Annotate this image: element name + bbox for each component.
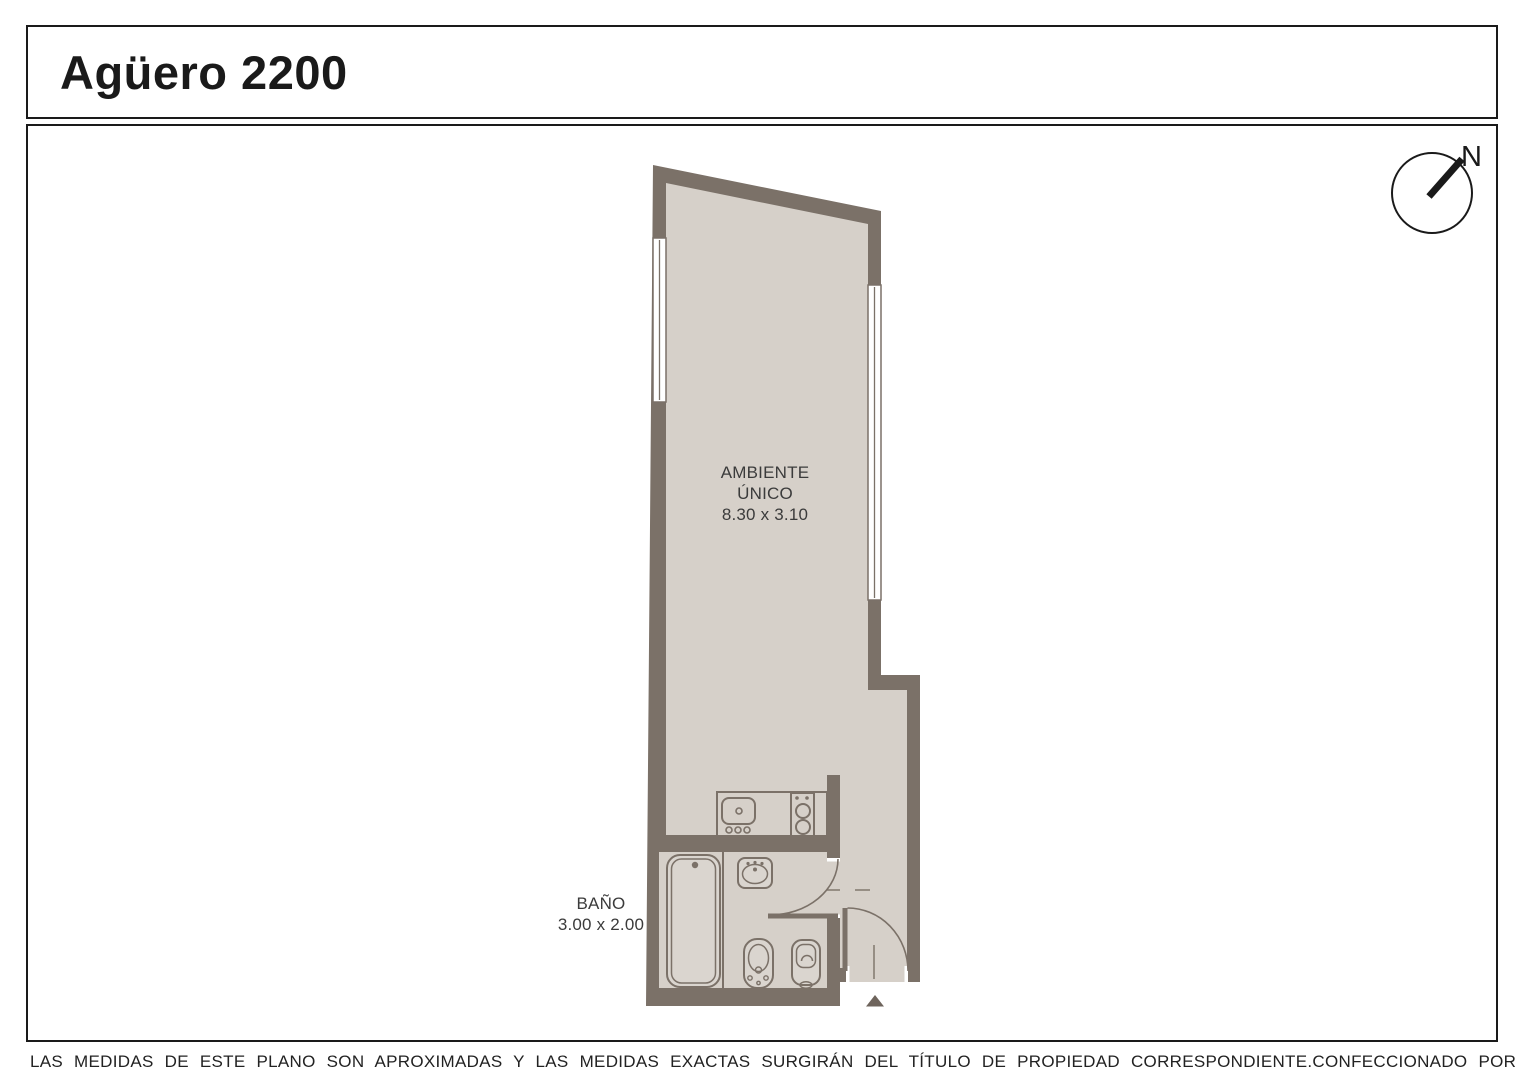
entrance-doorway-opening xyxy=(849,966,905,982)
bathtub xyxy=(667,852,723,988)
bathroom-name: BAÑO xyxy=(546,893,656,914)
main-room-name-line2: ÚNICO xyxy=(700,483,830,504)
bathroom-dimensions: 3.00 x 2.00 xyxy=(546,914,656,935)
entrance-arrow xyxy=(866,995,884,1007)
disclaimer-text: LAS MEDIDAS DE ESTE PLANO SON APROXIMADA… xyxy=(30,1052,1312,1072)
window-left xyxy=(653,238,666,402)
floor-plan-svg xyxy=(0,0,1528,1080)
north-compass xyxy=(1392,153,1472,233)
main-room-name-line1: AMBIENTE xyxy=(700,462,830,483)
footer: LAS MEDIDAS DE ESTE PLANO SON APROXIMADA… xyxy=(30,1052,1502,1072)
washbasin-faucet xyxy=(753,868,757,872)
window-right xyxy=(868,285,881,600)
bidet xyxy=(744,939,773,988)
main-room-dimensions: 8.30 x 3.10 xyxy=(700,504,830,525)
north-label: N xyxy=(1461,141,1482,174)
main-room-label: AMBIENTE ÚNICO 8.30 x 3.10 xyxy=(700,462,830,525)
bathroom-label: BAÑO 3.00 x 2.00 xyxy=(546,893,656,935)
washbasin xyxy=(738,858,772,888)
toilet xyxy=(792,940,820,988)
bathtub-drain xyxy=(692,862,698,868)
credit-text: CONFECCIONADO POR ESTUDIO NARTEX xyxy=(1312,1052,1528,1072)
